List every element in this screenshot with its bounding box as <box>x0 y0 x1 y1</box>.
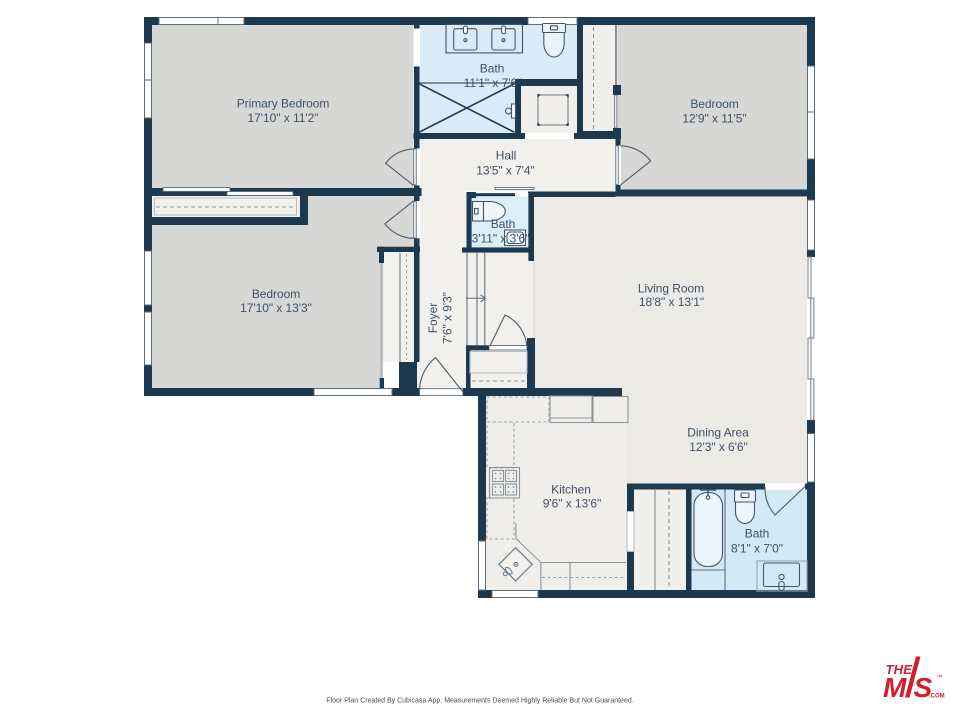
svg-text:Bedroom: Bedroom <box>252 287 300 301</box>
svg-text:Living Room: Living Room <box>638 282 704 296</box>
svg-text:M: M <box>883 672 907 703</box>
svg-text:Foyer: Foyer <box>426 303 440 333</box>
svg-text:8'1" x 7'0": 8'1" x 7'0" <box>731 542 783 556</box>
svg-text:17'10" x 11'2": 17'10" x 11'2" <box>248 111 319 125</box>
svg-text:7'6" x 9'3": 7'6" x 9'3" <box>441 292 455 344</box>
svg-text:Bath: Bath <box>745 527 770 541</box>
svg-text:11'1" x 7'6": 11'1" x 7'6" <box>464 76 522 90</box>
svg-text:17'10" x 13'3": 17'10" x 13'3" <box>240 301 312 315</box>
svg-text:™: ™ <box>937 674 943 681</box>
svg-text:Primary Bedroom: Primary Bedroom <box>237 97 330 111</box>
svg-text:Bath: Bath <box>480 62 505 76</box>
svg-text:Bath: Bath <box>491 217 516 231</box>
svg-text:12'3" x 6'6": 12'3" x 6'6" <box>689 440 748 454</box>
svg-text:18'8" x 13'1": 18'8" x 13'1" <box>639 295 704 309</box>
svg-text:Dining Area: Dining Area <box>687 426 749 440</box>
svg-text:12'9" x 11'5": 12'9" x 11'5" <box>682 112 746 126</box>
svg-text:Hall: Hall <box>496 149 516 163</box>
svg-text:Floor Plan Created By Cubicasa: Floor Plan Created By Cubicasa App. Meas… <box>326 698 633 705</box>
svg-text:13'5" x 7'4": 13'5" x 7'4" <box>476 164 535 178</box>
svg-text:Kitchen: Kitchen <box>551 483 591 497</box>
svg-text:9'6" x 13'6": 9'6" x 13'6" <box>543 497 602 511</box>
svg-text:Bedroom: Bedroom <box>690 97 738 111</box>
svg-text:.COM: .COM <box>929 694 945 700</box>
svg-text:3'11" x 3'6": 3'11" x 3'6" <box>472 232 530 246</box>
